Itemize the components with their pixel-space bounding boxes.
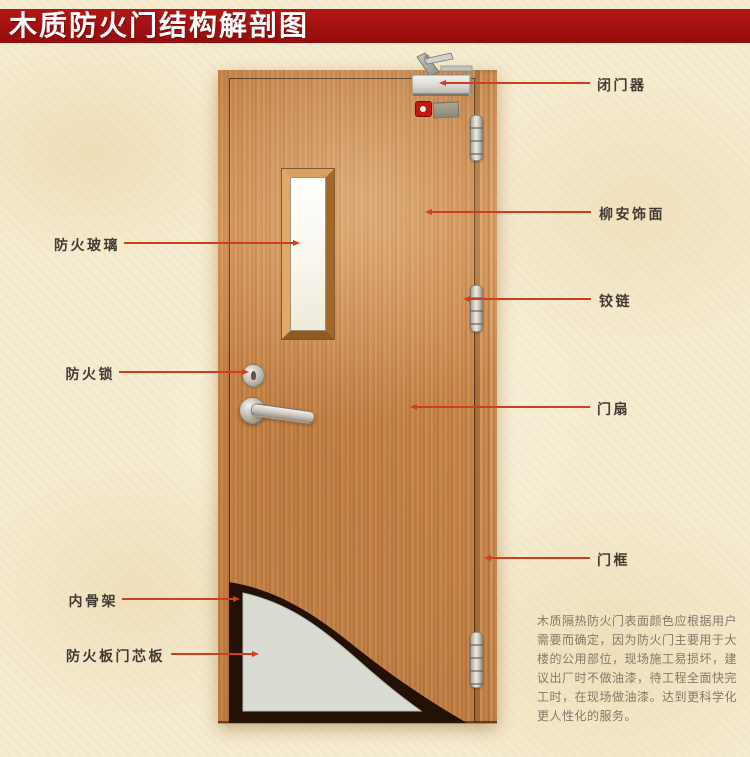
label-door-leaf: 门扇 <box>597 399 630 419</box>
leader-line-door-leaf <box>416 406 590 408</box>
arrow-icon <box>425 209 432 215</box>
leader-line-door-closer <box>445 82 590 84</box>
label-fire-glass: 防火玻璃 <box>54 235 120 255</box>
indicator-dot <box>420 106 426 112</box>
door-illustration <box>218 70 497 723</box>
arrow-icon <box>410 404 417 410</box>
arrow-icon <box>293 240 300 246</box>
label-inner-skeleton: 内骨架 <box>69 591 119 611</box>
label-door-frame: 门框 <box>597 550 630 570</box>
leader-line-fire-lock <box>119 371 243 373</box>
lock-cylinder <box>242 364 265 387</box>
label-fire-lock: 防火锁 <box>66 364 116 384</box>
page-title: 木质防火门结构解剖图 <box>0 9 750 43</box>
fire-glass-window <box>282 169 334 339</box>
arrow-icon <box>463 296 470 302</box>
arrow-icon <box>484 555 491 561</box>
keyhole-icon <box>251 371 256 380</box>
leader-line-core-panel <box>171 653 253 655</box>
page-background: 木质防火门结构解剖图 <box>0 0 750 757</box>
label-door-closer: 闭门器 <box>597 75 647 95</box>
title-banner: 木质防火门结构解剖图 <box>0 9 750 43</box>
closer-indicator-light <box>415 101 432 117</box>
hinge-top <box>470 115 483 161</box>
arrow-icon <box>242 369 249 375</box>
wood-grain-shading <box>218 70 497 723</box>
hinge-middle <box>470 285 483 332</box>
label-core-panel: 防火板门芯板 <box>66 646 165 666</box>
description-text: 木质隔热防火门表面颜色应根据用户 需要而确定，因为防火门主要用于大 楼的公用部位… <box>537 612 739 726</box>
label-veneer: 柳安饰面 <box>599 204 665 224</box>
leader-line-veneer <box>431 211 591 213</box>
leader-line-door-frame <box>490 557 590 559</box>
rating-plate <box>433 101 460 118</box>
leader-line-fire-glass <box>124 242 294 244</box>
hinge-bottom <box>470 632 483 688</box>
arrow-icon <box>252 651 259 657</box>
leader-line-inner-skeleton <box>122 598 234 600</box>
arrow-icon <box>233 596 240 602</box>
arrow-icon <box>439 80 446 86</box>
leader-line-hinge <box>469 298 591 300</box>
label-hinge: 铰链 <box>599 291 632 311</box>
